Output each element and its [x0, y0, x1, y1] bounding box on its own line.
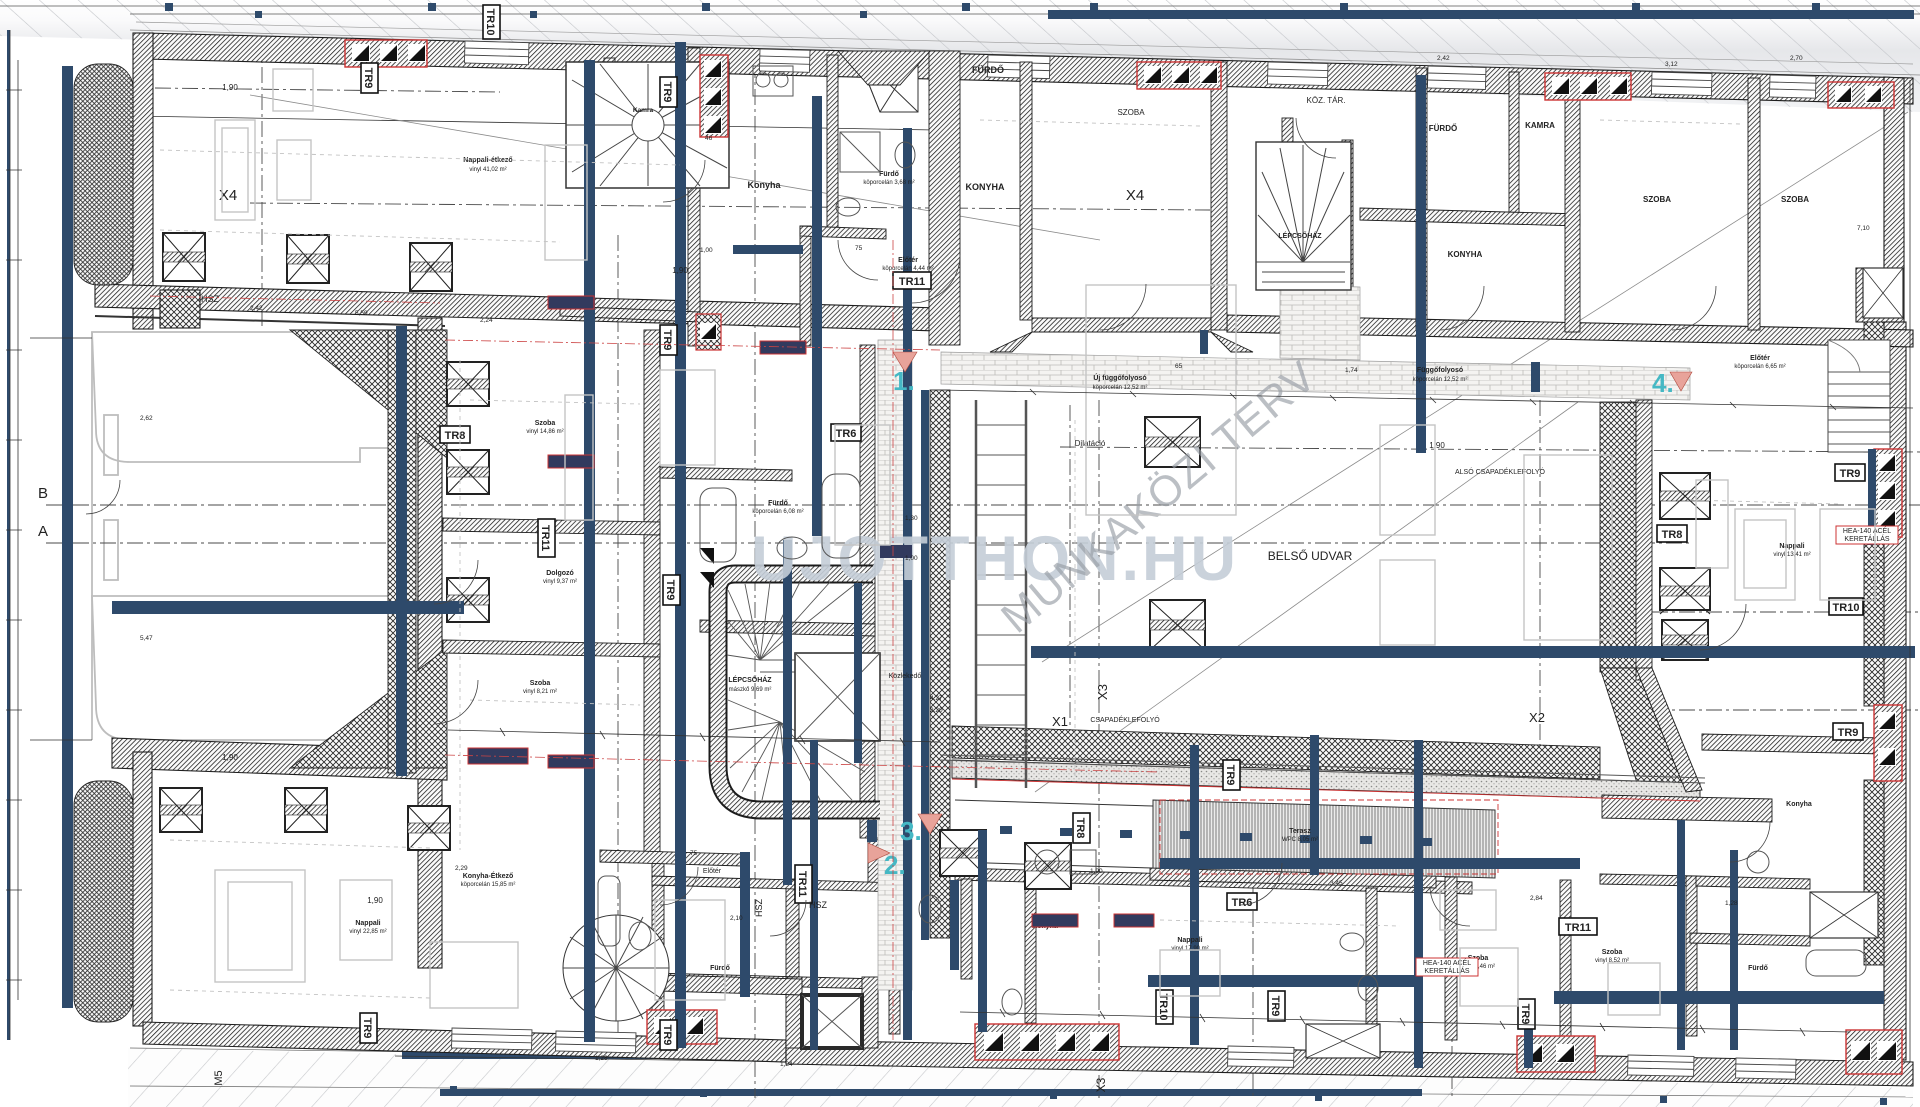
svg-text:Nappali: Nappali	[1779, 543, 1804, 550]
svg-text:3,12: 3,12	[1665, 61, 1678, 68]
svg-text:HEA-140 ACÉL: HEA-140 ACÉL	[1423, 958, 1471, 967]
svg-text:Szoba: Szoba	[1602, 949, 1623, 956]
svg-text:HEA-140 ACÉL: HEA-140 ACÉL	[1843, 526, 1891, 535]
svg-text:Nappali: Nappali	[355, 920, 380, 927]
svg-text:1,90: 1,90	[1090, 868, 1103, 875]
svg-text:SZOBA: SZOBA	[1117, 108, 1145, 117]
svg-text:KONYHA: KONYHA	[965, 182, 1005, 192]
svg-text:2,62: 2,62	[140, 415, 153, 422]
svg-text:köporcelán 12,52 m²: köporcelán 12,52 m²	[1093, 385, 1148, 391]
svg-text:Fürdő: Fürdő	[879, 171, 899, 178]
svg-text:ALSÓ CSAPADÉKLEFOLYÓ: ALSÓ CSAPADÉKLEFOLYÓ	[1455, 467, 1546, 476]
svg-text:1,28: 1,28	[1725, 900, 1738, 907]
svg-text:TR8: TR8	[1074, 818, 1086, 839]
svg-text:TR9: TR9	[1838, 727, 1859, 739]
svg-text:65: 65	[1175, 363, 1183, 370]
svg-text:UJOTTHON.HU: UJOTTHON.HU	[751, 524, 1239, 594]
svg-text:Fürdő: Fürdő	[710, 965, 730, 972]
svg-text:KAMRA: KAMRA	[1525, 121, 1555, 130]
svg-text:vinyl 9,37 m²: vinyl 9,37 m²	[543, 579, 577, 585]
svg-text:2,70: 2,70	[1790, 55, 1803, 62]
svg-text:Kamra: Kamra	[633, 107, 654, 114]
svg-text:1,74: 1,74	[1345, 367, 1358, 374]
svg-text:SZOBA: SZOBA	[1781, 195, 1809, 204]
svg-text:A: A	[38, 523, 48, 540]
svg-text:X3: X3	[1094, 1077, 1108, 1092]
svg-text:TR9: TR9	[1519, 1004, 1531, 1025]
svg-text:1,90: 1,90	[222, 83, 238, 92]
svg-text:Fürdő: Fürdő	[1748, 965, 1768, 972]
svg-text:CSAPADÉKLEFOLYÓ: CSAPADÉKLEFOLYÓ	[1090, 715, 1160, 724]
svg-text:5,59: 5,59	[355, 310, 368, 317]
svg-text:vinyl 13,41 m²: vinyl 13,41 m²	[1773, 552, 1810, 558]
svg-text:TR9: TR9	[661, 82, 673, 103]
svg-text:Előtér: Előtér	[1750, 355, 1770, 362]
svg-text:köporcelán 6,08 m²: köporcelán 6,08 m²	[752, 509, 803, 515]
svg-text:Nappali: Nappali	[1177, 937, 1202, 944]
svg-text:Fürdő: Fürdő	[768, 500, 788, 507]
svg-text:Konyha-Étkező: Konyha-Étkező	[463, 871, 514, 880]
svg-text:LÉPCSŐHÁZ: LÉPCSŐHÁZ	[728, 675, 772, 684]
svg-text:2,24: 2,24	[480, 317, 493, 324]
svg-text:LÉPCSŐHÁZ: LÉPCSŐHÁZ	[1278, 231, 1322, 240]
svg-text:5,47: 5,47	[140, 635, 153, 642]
svg-text:Függőfolyosó: Függőfolyosó	[1417, 367, 1463, 374]
svg-text:1,24: 1,24	[780, 1061, 793, 1068]
svg-text:FÜRDŐ: FÜRDŐ	[972, 64, 1004, 75]
svg-text:TR10: TR10	[1833, 602, 1860, 614]
svg-text:1,28: 1,28	[595, 1055, 608, 1062]
svg-text:TR11: TR11	[796, 871, 808, 897]
svg-text:3,45: 3,45	[1330, 880, 1343, 887]
svg-text:TR6: TR6	[1232, 897, 1253, 909]
svg-text:2,84: 2,84	[1530, 895, 1543, 902]
svg-text:HSZ: HSZ	[201, 294, 220, 304]
svg-text:75: 75	[690, 850, 698, 857]
svg-text:BELSŐ UDVAR: BELSŐ UDVAR	[1268, 548, 1353, 563]
svg-text:vinyl 17,90 m²: vinyl 17,90 m²	[1171, 946, 1208, 952]
svg-text:TR11: TR11	[539, 525, 551, 551]
svg-text:Előtér: Előtér	[703, 868, 722, 875]
svg-text:2,10: 2,10	[730, 915, 743, 922]
svg-text:TR9: TR9	[1269, 996, 1281, 1017]
svg-text:1,90: 1,90	[672, 266, 688, 275]
svg-text:X2: X2	[1529, 710, 1545, 725]
svg-text:Dilatáció: Dilatáció	[1075, 439, 1106, 448]
svg-text:TR8: TR8	[1662, 529, 1683, 541]
svg-text:1,00: 1,00	[700, 247, 713, 254]
svg-text:TR9: TR9	[1224, 765, 1236, 786]
svg-text:HSZ: HSZ	[809, 900, 828, 910]
svg-text:1,90: 1,90	[222, 753, 238, 762]
svg-text:B: B	[38, 485, 48, 502]
svg-text:46: 46	[705, 135, 713, 142]
svg-text:7,10: 7,10	[1857, 225, 1870, 232]
svg-text:Új függőfolyosó: Új függőfolyosó	[1093, 373, 1146, 382]
svg-text:KONYHA: KONYHA	[1448, 250, 1483, 259]
svg-text:TR11: TR11	[1565, 922, 1591, 934]
svg-text:TR11: TR11	[899, 276, 925, 288]
svg-text:Szoba: Szoba	[530, 680, 551, 687]
svg-text:1,00: 1,00	[905, 555, 918, 562]
svg-text:vinyl 14,86 m²: vinyl 14,86 m²	[526, 429, 563, 435]
svg-text:KÖZ. TÁR.: KÖZ. TÁR.	[1307, 96, 1346, 105]
svg-text:Dolgozó: Dolgozó	[546, 570, 574, 577]
svg-text:TR9: TR9	[362, 68, 374, 89]
svg-text:22: 22	[1000, 0, 1008, 2]
svg-text:TR9: TR9	[361, 1018, 373, 1039]
svg-text:köporcelán 3,68 m²: köporcelán 3,68 m²	[863, 180, 914, 186]
svg-text:Terasz: Terasz	[1289, 828, 1311, 835]
svg-text:köporcelán 4,44 m²: köporcelán 4,44 m²	[882, 266, 933, 272]
svg-text:WPC 8,05 m²: WPC 8,05 m²	[1282, 837, 1318, 843]
svg-text:TR9: TR9	[664, 580, 676, 601]
svg-text:köporcelán 15,85 m²: köporcelán 15,85 m²	[461, 882, 516, 888]
svg-text:75: 75	[855, 245, 863, 252]
svg-text:2,42: 2,42	[250, 305, 263, 312]
svg-text:X4: X4	[1126, 187, 1144, 204]
svg-text:TR9: TR9	[661, 1025, 673, 1046]
svg-text:1,30: 1,30	[905, 515, 918, 522]
svg-text:vinyl 41,02 m²: vinyl 41,02 m²	[469, 167, 506, 173]
svg-text:TR10: TR10	[484, 9, 496, 36]
svg-text:TR6: TR6	[836, 428, 857, 440]
svg-text:1,90: 1,90	[1429, 441, 1445, 450]
svg-text:vinyl 8,21 m²: vinyl 8,21 m²	[523, 689, 557, 695]
svg-text:TR8: TR8	[445, 430, 466, 442]
svg-text:KERETÁLLÁS: KERETÁLLÁS	[1844, 534, 1889, 543]
svg-text:4,27: 4,27	[930, 695, 943, 702]
svg-text:Konyha: Konyha	[747, 180, 781, 190]
svg-text:KERETÁLLÁS: KERETÁLLÁS	[1424, 966, 1469, 975]
svg-text:mászkő 9,69 m²: mászkő 9,69 m²	[729, 687, 772, 693]
svg-text:FÜRDŐ: FÜRDŐ	[1429, 124, 1457, 133]
svg-text:2,29: 2,29	[455, 865, 468, 872]
svg-text:köporcelán 12,52 m²: köporcelán 12,52 m²	[1413, 377, 1468, 383]
svg-text:köporcelán 6,65 m²: köporcelán 6,65 m²	[1734, 364, 1785, 370]
svg-text:X1: X1	[1052, 714, 1068, 729]
svg-text:2,20: 2,20	[930, 707, 943, 714]
svg-text:2,42: 2,42	[1437, 55, 1450, 62]
svg-text:1,90: 1,90	[367, 896, 383, 905]
svg-text:Konyha: Konyha	[1786, 801, 1812, 808]
svg-text:TR9: TR9	[1840, 468, 1861, 480]
svg-text:Előtér: Előtér	[898, 257, 918, 264]
svg-text:X3: X3	[1095, 684, 1110, 700]
svg-text:HSZ: HSZ	[754, 898, 764, 917]
svg-text:vinyl 22,85 m²: vinyl 22,85 m²	[349, 929, 386, 935]
svg-text:Nappali-étkező: Nappali-étkező	[463, 157, 512, 164]
svg-text:TR9: TR9	[661, 330, 673, 351]
svg-text:3.: 3.	[900, 816, 922, 846]
svg-text:Szoba: Szoba	[535, 420, 556, 427]
svg-text:M5: M5	[213, 1070, 225, 1085]
svg-text:SZOBA: SZOBA	[1643, 195, 1671, 204]
svg-text:Közlekedő: Közlekedő	[889, 673, 922, 680]
